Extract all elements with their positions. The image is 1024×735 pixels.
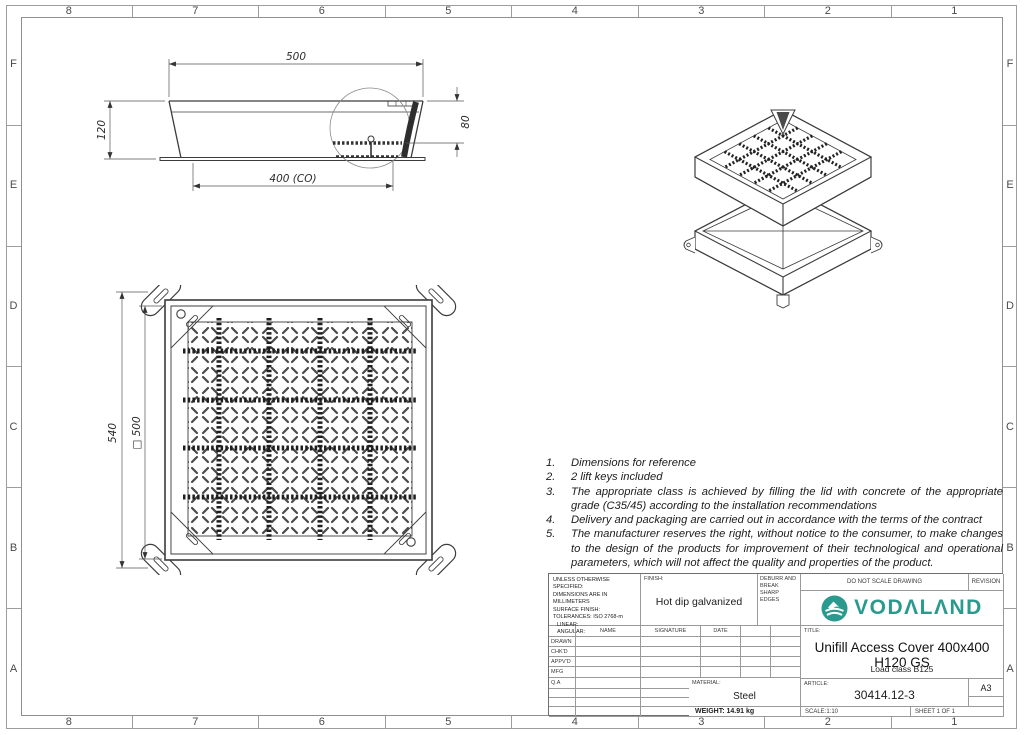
vodaland-logo-icon [821, 595, 848, 622]
iso-frame-tab [684, 237, 695, 253]
do-not-scale-cell: DO NOT SCALE DRAWING [801, 574, 969, 591]
plan-view-drawing: 540 □ 500 [100, 285, 460, 575]
grid-row-label: A [1003, 609, 1017, 729]
deburr-cell: DEBURR AND BREAK SHARP EDGES [758, 574, 801, 626]
paper-size-empty-cell [969, 697, 1004, 707]
grid-row-label: A [6, 609, 21, 729]
table-cell [701, 647, 741, 657]
grid-row-label: D [1003, 247, 1017, 368]
material-value: Steel [689, 691, 800, 702]
lift-key-hole [177, 310, 185, 318]
dim-label-500-square: □ 500 [131, 416, 143, 450]
grid-col-label: 6 [259, 716, 386, 729]
grid-col-label: 7 [133, 716, 260, 729]
article-label: ARTICLE: [804, 681, 829, 688]
note-item: 1. Dimensions for reference [546, 456, 1003, 470]
grid-col-label: 6 [259, 5, 386, 17]
dim-label-500: 500 [286, 51, 306, 63]
note-number: 3. [546, 485, 571, 514]
grid-col-label: 4 [512, 5, 639, 17]
grid-col-label: 1 [892, 5, 1018, 17]
finish-label: FINISH: [644, 576, 664, 583]
lift-key-hole [407, 538, 415, 546]
table-cell [641, 637, 701, 647]
grid-col-label: 3 [639, 5, 766, 17]
table-cell [641, 657, 701, 667]
scale-cell: SCALE:1:10 [801, 707, 911, 717]
table-cell [701, 667, 741, 678]
grid-row-label: E [1003, 126, 1017, 247]
dim-label-400-co: 400 (CO) [269, 173, 316, 185]
tolerance-line: TOLERANCES: ISO 2768-m [553, 614, 640, 621]
row-label: DRAWN [549, 637, 576, 647]
title-cell: TITLE: Unifill Access Cover 400x400 H120… [801, 626, 1004, 679]
note-text: The appropriate class is achieved by fil… [571, 485, 1003, 514]
row-label: CHK'D [549, 647, 576, 657]
table-cell [741, 626, 771, 637]
grid-col-label: 5 [386, 716, 513, 729]
grid-col-label: 8 [6, 716, 133, 729]
grid-row-label: E [6, 126, 21, 247]
grid-col-label: 8 [6, 5, 133, 17]
table-cell [771, 657, 801, 667]
dim-label-120: 120 [96, 120, 108, 140]
dim-label-80: 80 [460, 115, 472, 129]
material-label: MATERIAL: [692, 680, 721, 687]
table-cell [771, 637, 801, 647]
material-cell: MATERIAL: Steel [689, 678, 801, 707]
side-view-outline [160, 101, 425, 161]
article-cell: ARTICLE: 30414.12-3 [801, 679, 969, 707]
plan-lid [183, 318, 417, 540]
note-number: 2. [546, 470, 571, 484]
grid-col-label: 7 [133, 5, 260, 17]
tolerance-line: SURFACE FINISH: [553, 607, 640, 614]
title-label: TITLE: [804, 628, 821, 635]
grid-col-label: 4 [512, 716, 639, 729]
grid-row-label: B [6, 488, 21, 609]
row-label: MFG [549, 667, 576, 678]
table-cell [576, 647, 641, 657]
note-number: 5. [546, 527, 571, 570]
note-item: 4. Delivery and packaging are carried ou… [546, 513, 1003, 527]
column-header: SIGNATURE [641, 626, 701, 637]
note-item: 2. 2 lift keys included [546, 470, 1003, 484]
drawing-sheet: 8 7 6 5 4 3 2 1 8 7 6 5 4 3 2 1 F E D C … [0, 0, 1024, 735]
note-number: 1. [546, 456, 571, 470]
weight-cell: WEIGHT: 14.91 kg [689, 707, 801, 717]
notes-list: 1. Dimensions for reference 2. 2 lift ke… [546, 456, 1003, 570]
table-cell [576, 667, 641, 678]
note-text: The manufacturer reserves the right, wit… [571, 527, 1003, 570]
table-cell [771, 647, 801, 657]
table-cell [576, 707, 641, 717]
table-cell [741, 667, 771, 678]
table-cell [576, 637, 641, 647]
grid-band-right: F E D C B A [1003, 5, 1017, 729]
row-label: APPV'D [549, 657, 576, 667]
table-cell [641, 667, 701, 678]
table-cell [741, 647, 771, 657]
paper-size-cell: A3 [969, 679, 1004, 697]
table-cell [641, 647, 701, 657]
article-number: 30414.12-3 [801, 688, 968, 702]
brand-logo: VODΛLΛND [801, 591, 1004, 626]
grid-band-left: F E D C B A [6, 5, 21, 729]
note-text: 2 lift keys included [571, 470, 1003, 484]
finish-cell: FINISH: Hot dip galvanized [641, 574, 758, 626]
table-cell [549, 707, 576, 717]
column-header: DATE [701, 626, 741, 637]
table-cell [549, 626, 576, 637]
table-cell [549, 698, 576, 707]
isometric-view-drawing [640, 100, 960, 320]
grid-col-label: 1 [892, 716, 1018, 729]
load-class: Load class B125 [801, 664, 1003, 674]
title-block: UNLESS OTHERWISE SPECIFIED: DIMENSIONS A… [548, 573, 1003, 716]
grid-row-label: F [6, 5, 21, 126]
table-cell [771, 626, 801, 637]
row-label: Q.A [549, 678, 576, 689]
iso-frame-tab [871, 237, 882, 253]
note-item: 5. The manufacturer reserves the right, … [546, 527, 1003, 570]
table-cell [701, 657, 741, 667]
grid-band-top: 8 7 6 5 4 3 2 1 [6, 5, 1017, 17]
grid-col-label: 5 [386, 5, 513, 17]
grid-band-bottom: 8 7 6 5 4 3 2 1 [6, 716, 1017, 729]
table-cell [549, 689, 576, 698]
side-view-drawing: 500 120 80 400 (CO) [80, 40, 480, 210]
revision-cell: REVISION [969, 574, 1004, 591]
note-text: Dimensions for reference [571, 456, 1003, 470]
table-cell [576, 657, 641, 667]
dim-label-540: 540 [107, 423, 119, 443]
table-cell [576, 689, 641, 698]
table-cell [576, 698, 641, 707]
column-header: NAME [576, 626, 641, 637]
iso-lid [695, 110, 871, 226]
table-cell [771, 667, 801, 678]
finish-value: Hot dip galvanized [641, 596, 757, 608]
tolerance-line: DIMENSIONS ARE IN MILLIMETERS [553, 592, 640, 607]
note-text: Delivery and packaging are carried out i… [571, 513, 1003, 527]
grid-col-label: 3 [639, 716, 766, 729]
note-item: 3. The appropriate class is achieved by … [546, 485, 1003, 514]
grid-row-label: F [1003, 5, 1017, 126]
grid-col-label: 2 [765, 716, 892, 729]
grid-row-label: C [1003, 367, 1017, 488]
grid-row-label: D [6, 247, 21, 368]
note-number: 4. [546, 513, 571, 527]
table-cell [741, 637, 771, 647]
table-cell [701, 637, 741, 647]
brand-wordmark: VODΛLΛND [854, 596, 983, 620]
table-cell [741, 657, 771, 667]
tolerance-line: UNLESS OTHERWISE SPECIFIED: [553, 577, 640, 592]
side-view-detail-circle [330, 88, 416, 168]
grid-col-label: 2 [765, 5, 892, 17]
sheet-number-cell: SHEET 1 OF 1 [911, 707, 1004, 717]
table-cell [576, 678, 641, 689]
grid-row-label: B [1003, 488, 1017, 609]
tolerance-block: UNLESS OTHERWISE SPECIFIED: DIMENSIONS A… [549, 574, 641, 626]
grid-row-label: C [6, 367, 21, 488]
